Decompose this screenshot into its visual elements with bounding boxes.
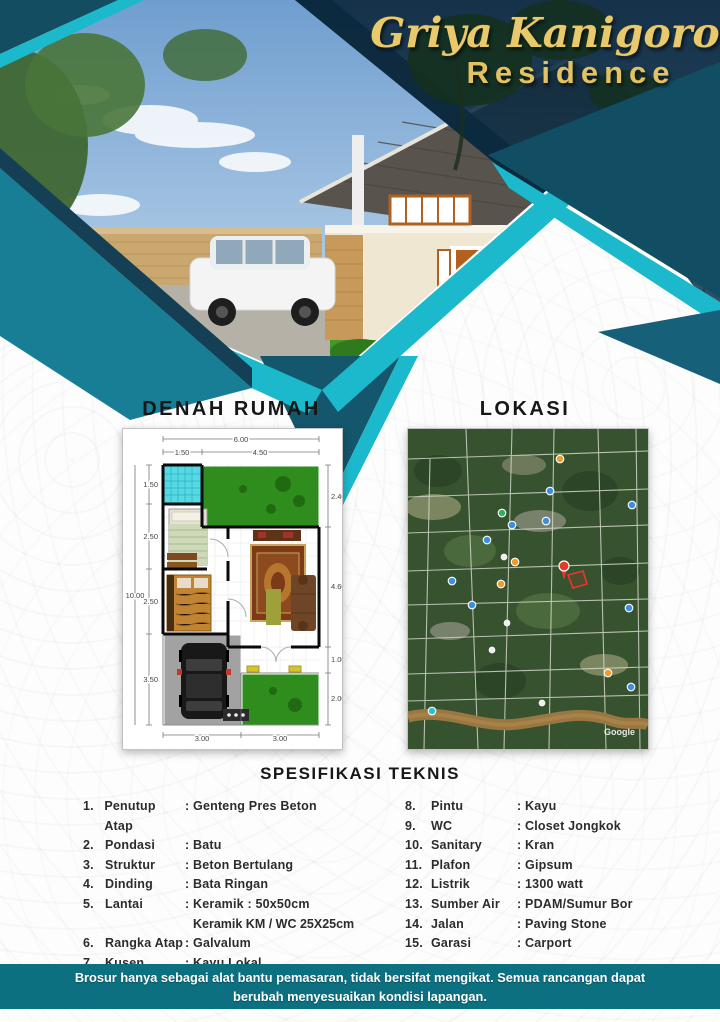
disclaimer-band: Brosur hanya sebagai alat bantu pemasara… <box>0 964 720 1009</box>
svg-text:3.00: 3.00 <box>273 734 288 743</box>
cabinet-bar <box>167 553 197 560</box>
spec-item: 13.Sumber Air: PDAM/Sumur Bor <box>405 895 633 915</box>
spec-item: 8.Pintu: Kayu <box>405 797 633 817</box>
palm-trees <box>480 246 628 352</box>
specs-heading: SPESIFIKASI TEKNIS <box>0 764 720 784</box>
spec-item: 12.Listrik: 1300 watt <box>405 875 633 895</box>
google-watermark: Google <box>604 727 635 737</box>
bathroom <box>165 467 201 503</box>
spec-item: 6.Rangka Atap: Galvalum <box>83 934 405 954</box>
specs-right-column: 8.Pintu: Kayu 9.WC: Closet Jongkok 10.Sa… <box>405 797 633 973</box>
spec-item: 4.Dinding: Bata Ringan <box>83 875 405 895</box>
cyan-pin <box>428 707 436 715</box>
door-mat <box>289 666 301 672</box>
brand-title-script: Griya Kanigoro <box>370 10 720 56</box>
svg-text:2.50: 2.50 <box>143 532 158 541</box>
spec-item: 9.WC: Closet Jongkok <box>405 817 633 837</box>
spec-item: 14.Jalan: Paving Stone <box>405 915 633 935</box>
spec-item: 15.Garasi: Carport <box>405 934 633 954</box>
hero-banner: Griya Kanigoro Residence <box>0 0 720 388</box>
satellite-map: Google <box>408 429 648 749</box>
svg-text:6.00: 6.00 <box>234 435 249 444</box>
svg-text:4.60: 4.60 <box>331 582 342 591</box>
location-map: Google <box>407 428 649 750</box>
svg-text:10.00: 10.00 <box>126 591 145 600</box>
svg-text:3.00: 3.00 <box>195 734 210 743</box>
svg-text:2.40: 2.40 <box>331 492 342 501</box>
front-doors <box>438 246 704 338</box>
spec-item: 1.Penutup Atap: Genteng Pres Beton <box>83 797 405 836</box>
spec-item: 3.Struktur: Beton Bertulang <box>83 856 405 876</box>
floorplan-heading: DENAH RUMAH <box>122 394 341 424</box>
coffee-table <box>266 589 281 625</box>
green-pin <box>498 509 506 517</box>
location-heading: LOKASI <box>405 394 645 424</box>
svg-text:1.50: 1.50 <box>143 480 158 489</box>
front-lawn <box>330 340 720 390</box>
svg-text:1.50: 1.50 <box>175 448 190 457</box>
spec-item: 5.Lantai: Keramik : 50x50cm <box>83 895 405 915</box>
spec-item: 11.Plafon: Gipsum <box>405 856 633 876</box>
panels-section: DENAH RUMAH LOKASI <box>0 388 720 750</box>
door-mat <box>247 666 259 672</box>
garden-bushes <box>330 325 720 372</box>
specs-left-column: 1.Penutup Atap: Genteng Pres Beton 2.Pon… <box>83 797 405 973</box>
brand-title-sub: Residence <box>396 56 720 90</box>
brand-title: Griya Kanigoro Residence <box>370 10 720 90</box>
svg-text:4.50: 4.50 <box>253 448 268 457</box>
svg-text:2.00: 2.00 <box>331 694 342 703</box>
floorplan-figure: 6.00 1.50 4.50 10.00 1.50 2.50 2.50 3.50… <box>122 428 343 750</box>
spec-item: 10.Sanitary: Kran <box>405 836 633 856</box>
floorplan-drawing: 6.00 1.50 4.50 10.00 1.50 2.50 2.50 3.50… <box>123 429 342 749</box>
svg-text:1.00: 1.00 <box>331 655 342 664</box>
cabinet-bar <box>167 562 197 568</box>
garden-bottom <box>243 675 319 725</box>
parked-car <box>177 643 231 719</box>
specs-section: SPESIFIKASI TEKNIS 1.Penutup Atap: Gente… <box>0 764 720 973</box>
disclaimer-text: Brosur hanya sebagai alat bantu pemasara… <box>60 964 660 1006</box>
stove <box>223 709 249 721</box>
svg-text:3.50: 3.50 <box>143 675 158 684</box>
bed-2 <box>167 575 211 631</box>
spec-item-continuation: Keramik KM / WC 25X25cm <box>83 915 405 935</box>
svg-text:2.50: 2.50 <box>143 597 158 606</box>
spec-item: 2.Pondasi: Batu <box>83 836 405 856</box>
